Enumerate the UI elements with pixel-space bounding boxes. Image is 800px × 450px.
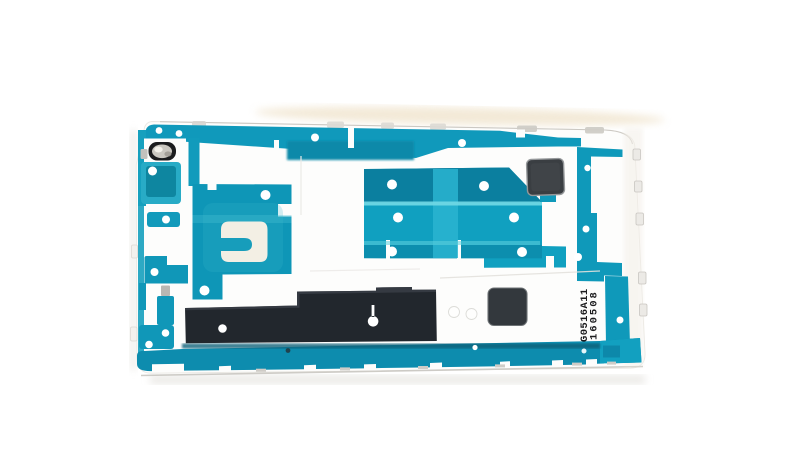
- svg-text:160508: 160508: [589, 290, 601, 340]
